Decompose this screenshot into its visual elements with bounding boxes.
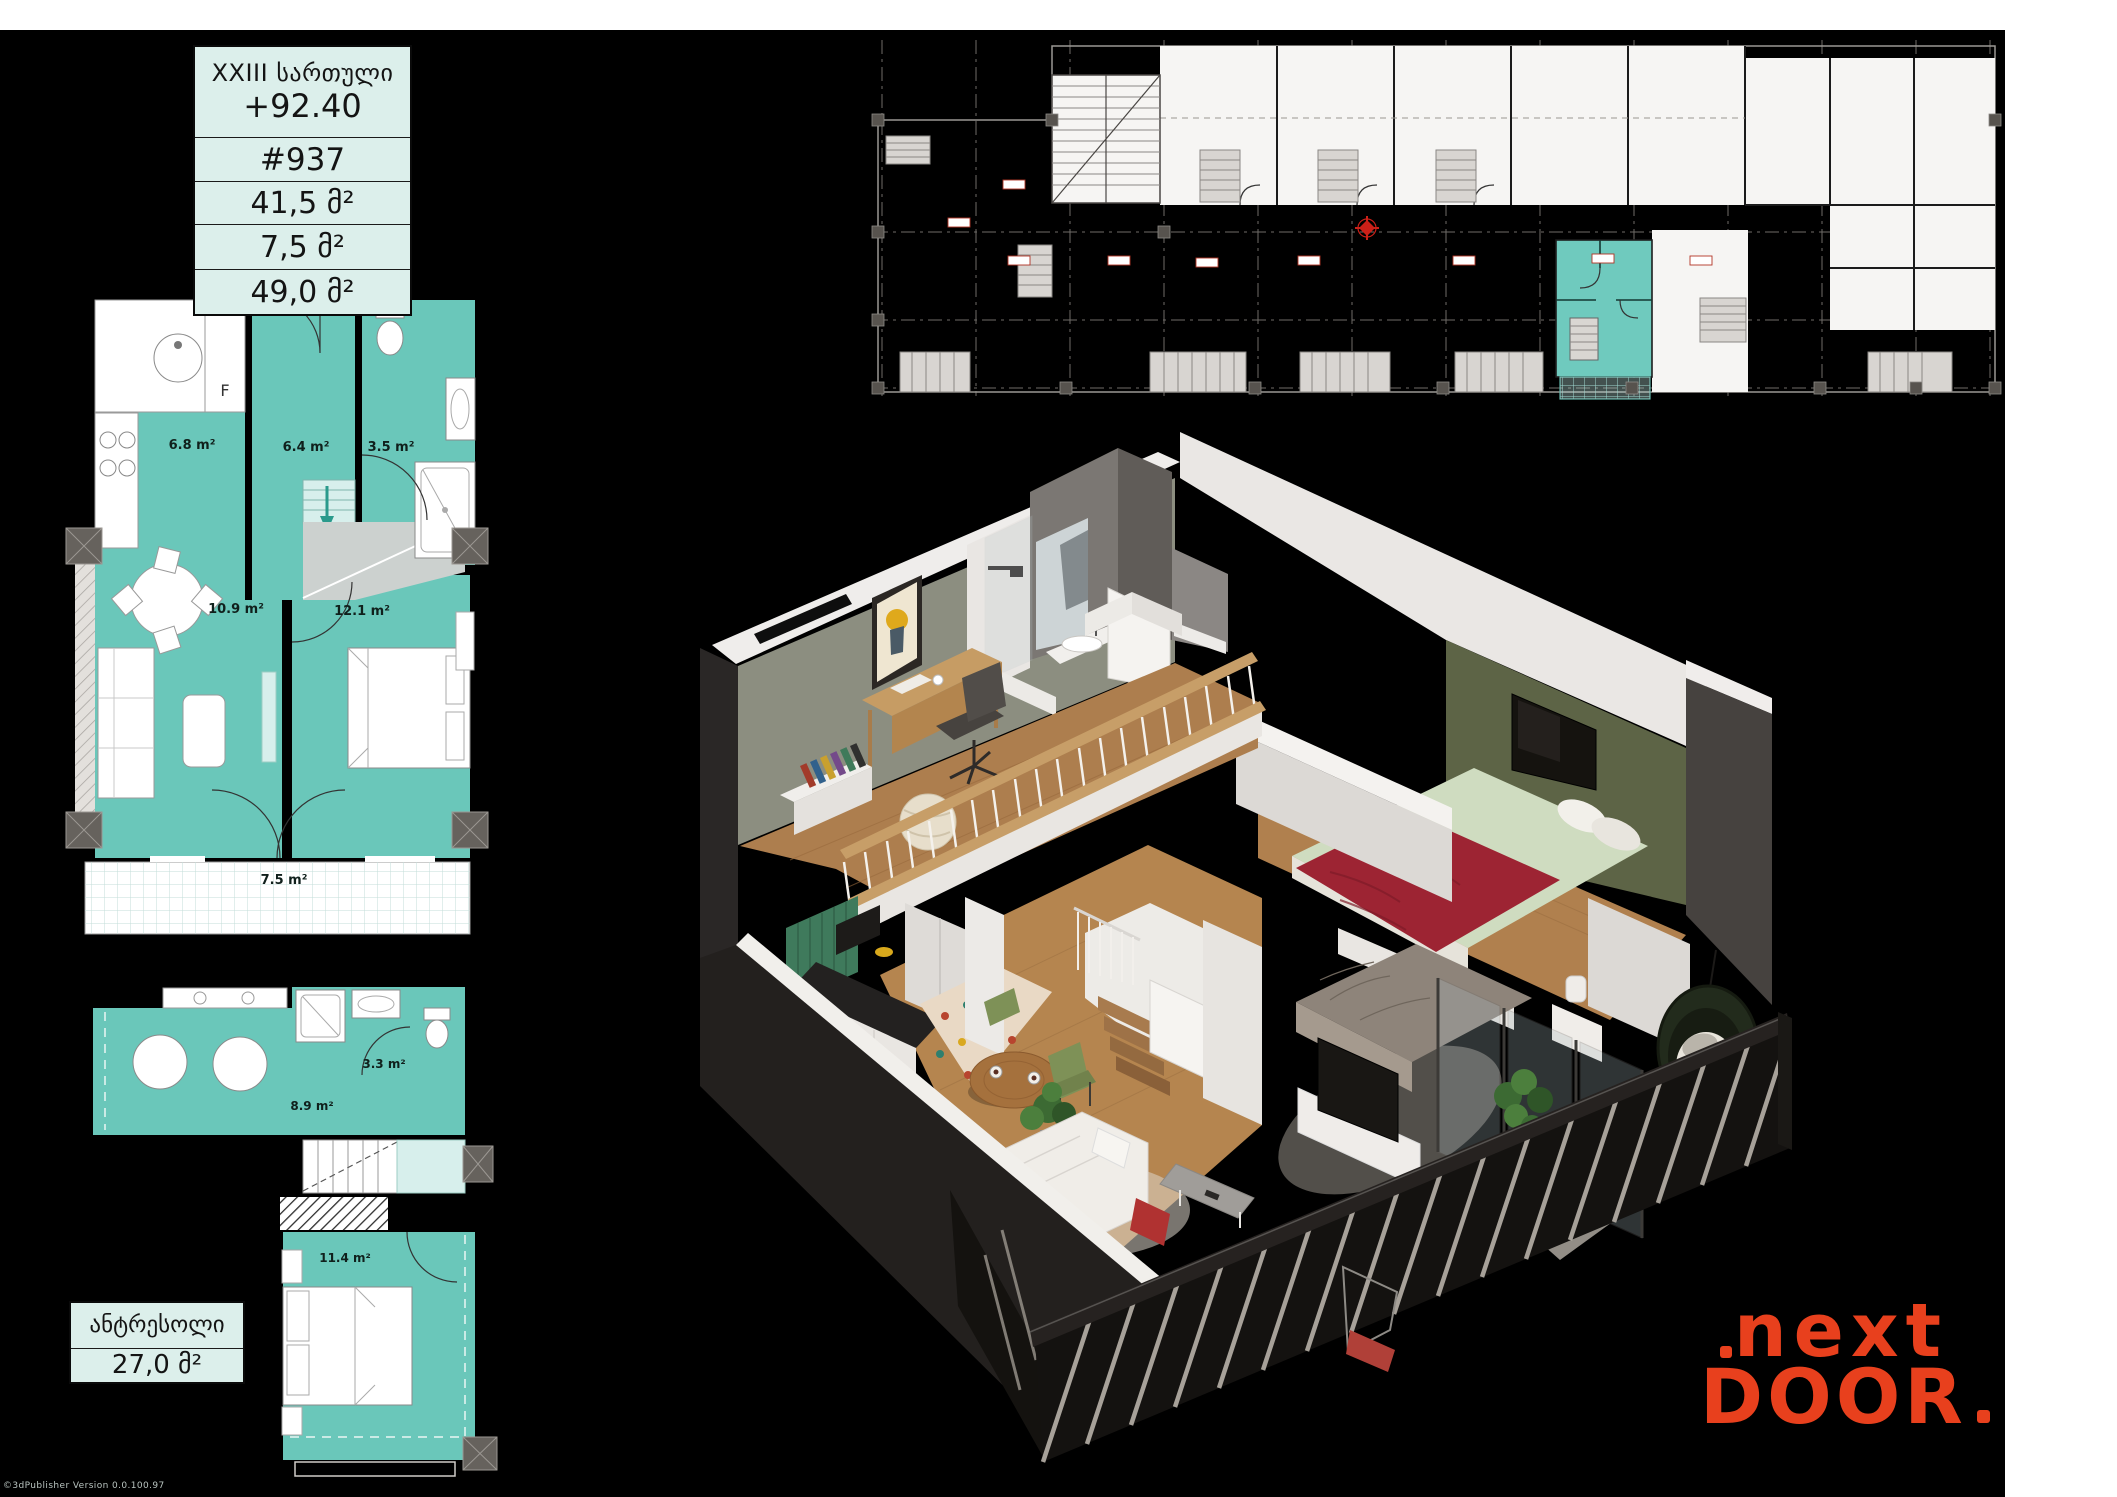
pouf-icon <box>133 1035 187 1089</box>
floor-label: XXIII სართული <box>195 59 410 87</box>
logo-line2: DOOR <box>1700 1364 1990 1429</box>
elevation-label: +92.40 <box>195 87 410 125</box>
mezz-counter <box>163 988 287 1008</box>
sofa-icon <box>98 648 154 798</box>
toilet-icon <box>377 321 403 355</box>
sink-icon <box>446 378 475 440</box>
nextdoor-logo: next DOOR <box>1700 1300 1990 1429</box>
label-mezz-bedroom-area: 11.4 m² <box>319 1251 371 1265</box>
label-bathroom-area: 3.5 m² <box>368 440 415 455</box>
logo-dot-icon <box>1720 1346 1732 1358</box>
mezzanine-area: 27,0 მ² <box>71 1349 243 1382</box>
bathroom-sink <box>1062 636 1102 652</box>
logo-period-icon <box>1977 1410 1990 1423</box>
label-living-area: 10.9 m² <box>208 602 264 617</box>
mezz-sink-icon <box>352 990 400 1018</box>
area-balcony: 7,5 მ² <box>195 230 410 265</box>
fridge-label: F <box>220 381 229 400</box>
unit-info-table: XXIII სართული +92.40 #937 41,5 მ² 7,5 მ²… <box>193 45 412 316</box>
mezz-toilet-icon <box>426 1020 448 1048</box>
overview-floor-plan <box>872 40 2001 399</box>
coffee-table-icon <box>183 695 225 767</box>
area-total: 49,0 მ² <box>195 275 410 310</box>
label-hall-area: 6.4 m² <box>283 440 330 455</box>
label-kitchen-area: 6.8 m² <box>169 438 216 453</box>
table-lamp-icon <box>1566 976 1586 1002</box>
north-compass-icon <box>1355 216 1379 240</box>
unit-number: #937 <box>195 142 410 178</box>
area-apartment: 41,5 მ² <box>195 186 410 221</box>
footer-version-note: ©3dPublisher Version 0.0.100.97 <box>3 1481 165 1491</box>
mezzanine-label-box: ანტრესოლი 27,0 მ² <box>69 1301 245 1384</box>
label-lounge-area: 8.9 m² <box>290 1099 333 1113</box>
pouf-icon <box>213 1037 267 1091</box>
main-floor-plan: F <box>66 295 488 934</box>
tv-unit-icon <box>262 672 276 762</box>
mezzanine-floor-plan: 8.9 m² 3.3 m² 11.4 m² <box>93 987 497 1476</box>
mezzanine-title: ანტრესოლი <box>71 1303 243 1349</box>
label-bedroom-area: 12.1 m² <box>334 604 390 619</box>
overview-highlighted-unit[interactable] <box>1556 240 1652 399</box>
label-balcony-area: 7.5 m² <box>261 873 308 888</box>
page: F <box>0 0 2117 1497</box>
render-3d <box>700 432 1792 1462</box>
mezz-landing <box>397 1140 465 1193</box>
info-row-floor: XXIII სართული +92.40 <box>195 47 410 137</box>
label-mezz-bath-area: 3.3 m² <box>362 1057 405 1071</box>
overview-stair-shaft <box>1052 75 1160 203</box>
